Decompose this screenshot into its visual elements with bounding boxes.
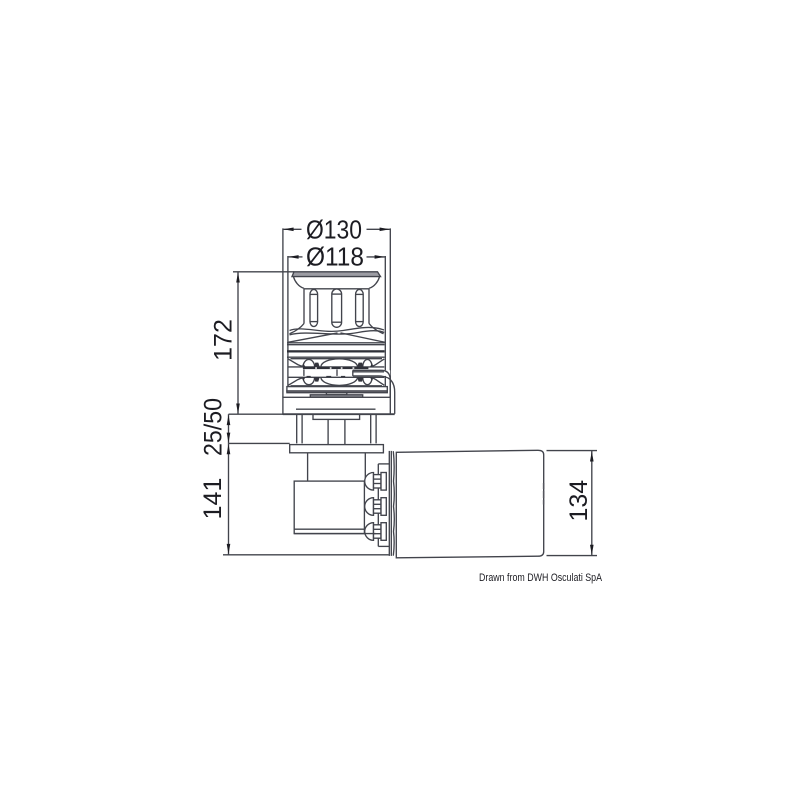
svg-text:141: 141 xyxy=(199,478,227,520)
svg-text:Ø130: Ø130 xyxy=(306,214,362,244)
svg-text:Ø118: Ø118 xyxy=(306,242,364,272)
svg-text:134: 134 xyxy=(565,480,593,522)
svg-text:25/50: 25/50 xyxy=(200,398,228,456)
svg-text:172: 172 xyxy=(210,319,238,361)
svg-text:Drawn from DWH Osculati SpA: Drawn from DWH Osculati SpA xyxy=(479,572,603,584)
